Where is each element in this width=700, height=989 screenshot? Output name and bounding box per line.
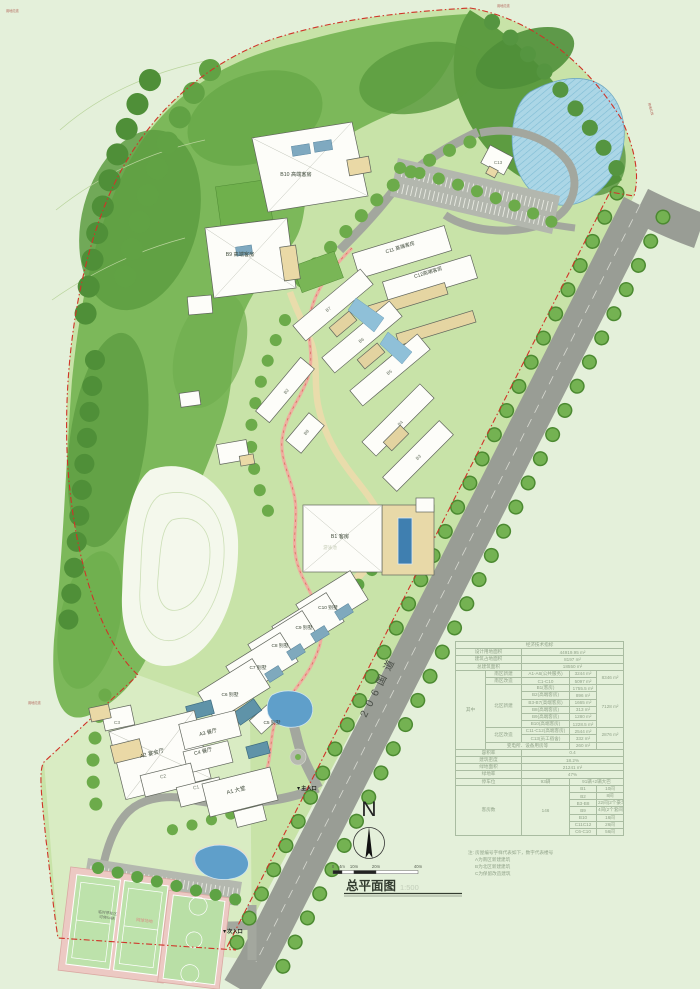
north-letter: N xyxy=(361,798,376,821)
site-area-label: 设计用地面积 xyxy=(456,649,522,656)
label-pool: 游泳池 xyxy=(323,544,337,551)
boundary-annotation-4: 用地红线 xyxy=(28,700,42,705)
legend-note: 注: 房屋编号字样代表如下，数字代表楼号 A为南区新建建筑 B为北区新建建筑 C… xyxy=(468,849,553,877)
table-cell: 2544 m² xyxy=(570,728,597,735)
label-c9: C9 别墅 xyxy=(295,624,312,631)
density-label: 建筑密度 xyxy=(456,757,522,764)
scale-40m: 40m xyxy=(414,864,423,869)
parking-value: 93辆 xyxy=(522,778,570,785)
rooms-label: 客房数 xyxy=(456,785,522,835)
table-cell: B1(客房) xyxy=(522,685,570,692)
label-c8: C8 别墅 xyxy=(271,642,288,649)
label-c10: C10 别墅 xyxy=(318,604,338,611)
south-total: 8346 m² xyxy=(597,670,624,684)
label-c13: C13 xyxy=(494,160,503,165)
label-b9: B9 高端客房 xyxy=(226,250,255,258)
table-cell: 56间 xyxy=(597,828,624,835)
table-cell: 16间 xyxy=(597,814,624,821)
north-new-label: 北区新建 xyxy=(486,685,522,728)
table-cell: 1755.5 m² xyxy=(570,685,597,692)
table-cell: 10间 xyxy=(597,785,624,792)
north-needle xyxy=(366,827,373,858)
secondary-entrance-label: ▼次入口 xyxy=(222,927,243,935)
table-cell: B3-B7(高端客房) xyxy=(522,699,570,706)
table-cell: B2(高端客房) xyxy=(522,692,570,699)
label-b10: B10 高端客房 xyxy=(280,170,311,178)
table-cell: B8(高端客房) xyxy=(522,706,570,713)
parking-note: 91辆+2辆大巴 xyxy=(570,778,624,785)
among-label: 其中 xyxy=(456,670,486,749)
table-cell: B1 xyxy=(570,785,597,792)
scale-20m: 20m xyxy=(372,864,381,869)
building-b1-complex xyxy=(303,498,434,575)
south-new-name: A1-A6(公共服务) xyxy=(522,670,570,677)
main-entrance-label: ▼主入口 xyxy=(296,784,317,792)
note-line-2: A为南区新建建筑 xyxy=(468,856,553,863)
title-scale: 1:500 xyxy=(400,883,419,892)
table-cell: 896 m² xyxy=(570,692,597,699)
scale-10m: 10m xyxy=(350,864,359,869)
master-plan-drawing: B10 高端客房 B9 高端客房 C11 高端客房 C12高端客房 C13 B7… xyxy=(0,0,700,989)
label-c6: C6 别墅 xyxy=(221,691,238,698)
far-value: 0.4 xyxy=(522,749,624,756)
table-cell: 1228.5 m² xyxy=(570,721,597,728)
parking-label: 停车位 xyxy=(456,778,522,785)
gfa-label: 总建筑面积 xyxy=(456,663,522,670)
drawing-title: 总平面图 1:500 xyxy=(344,878,462,896)
far-label: 容积率 xyxy=(456,749,522,756)
density-value: 18.2% xyxy=(522,757,624,764)
north-total: 7128 m² xyxy=(597,685,624,728)
note-line-4: C为保留改造建筑 xyxy=(468,870,553,877)
label-c7: C7 别墅 xyxy=(249,664,266,671)
south-renov-name: C1-C10 xyxy=(522,677,570,684)
table-cell: 313 m² xyxy=(570,706,597,713)
site-area-value: 44919.95 m² xyxy=(522,649,624,656)
table-cell: 332 m² xyxy=(570,735,597,742)
note-line-3: B为北区新建建筑 xyxy=(468,863,553,870)
note-line-1: 注: 房屋编号字样代表如下，数字代表楼号 xyxy=(468,849,553,856)
label-c5: C5 别墅 xyxy=(263,719,280,726)
boundary-annotation-2: 用地红线 xyxy=(497,3,511,8)
north-renov-total: 2876 m² xyxy=(597,728,624,742)
table-cell: 22间(2个豪华套间) xyxy=(597,800,624,807)
utility-value: 260 m² xyxy=(570,742,597,749)
table-cell: 8间 xyxy=(597,792,624,799)
table-cell: B9(高端客房) xyxy=(522,713,570,720)
table-cell: B2 xyxy=(570,792,597,799)
boundary-annotation-3: 用地红线 xyxy=(647,102,655,116)
site-plan-canvas: B10 高端客房 B9 高端客房 C11 高端客房 C12高端客房 C13 B7… xyxy=(0,0,700,989)
indicators-title: 经济技术指标 xyxy=(456,642,624,649)
gfa-value: 18550 m² xyxy=(522,663,624,670)
south-new-label: 南区新建 xyxy=(486,670,522,677)
green-rate-label: 绿地率 xyxy=(456,771,522,778)
table-cell: B10(高端客房) xyxy=(522,721,570,728)
utility-label: 变电所、设备用房等 xyxy=(486,742,570,749)
table-cell xyxy=(597,742,624,749)
table-cell: 26间 xyxy=(597,821,624,828)
table-cell: B10 xyxy=(570,814,597,821)
table-cell: C11C12 xyxy=(570,821,597,828)
table-cell: C11-C12(高端客房) xyxy=(522,728,570,735)
footprint-value: 8197 m² xyxy=(522,656,624,663)
green-rate-value: 47% xyxy=(522,771,624,778)
table-cell: B3-B8 xyxy=(570,800,597,807)
green-area-value: 21241 m² xyxy=(522,764,624,771)
green-area-label: 绿地面积 xyxy=(456,764,522,771)
table-cell: 1665 m² xyxy=(570,699,597,706)
scale-4m: 4m xyxy=(339,864,345,869)
table-cell: C6-C10 xyxy=(570,828,597,835)
rooms-total: 146 xyxy=(522,785,570,835)
north-renov-label: 北区改造 xyxy=(486,728,522,742)
south-renov-label: 南区改造 xyxy=(486,677,522,684)
scale-bar: 0 4m 10m 20m 40m xyxy=(332,864,423,874)
footprint-label: 建筑占地面积 xyxy=(456,656,522,663)
south-new-value: 3244 m² xyxy=(570,670,597,677)
label-b1: B1 客房 xyxy=(331,532,349,540)
table-cell: 4间(2个套间) xyxy=(597,807,624,814)
boundary-annotation-1: 用地红线 xyxy=(6,8,20,13)
page-title: 总平面图 xyxy=(346,878,396,893)
table-cell: C13(员工宿舍) xyxy=(522,735,570,742)
label-c3: C3 xyxy=(114,720,120,726)
south-renov-value: 5097 m² xyxy=(570,677,597,684)
table-cell: B9 xyxy=(570,807,597,814)
indicators-table: 经济技术指标 设计用地面积44919.95 m² 建筑占地面积8197 m² 总… xyxy=(455,641,624,836)
table-cell: 1280 m² xyxy=(570,713,597,720)
